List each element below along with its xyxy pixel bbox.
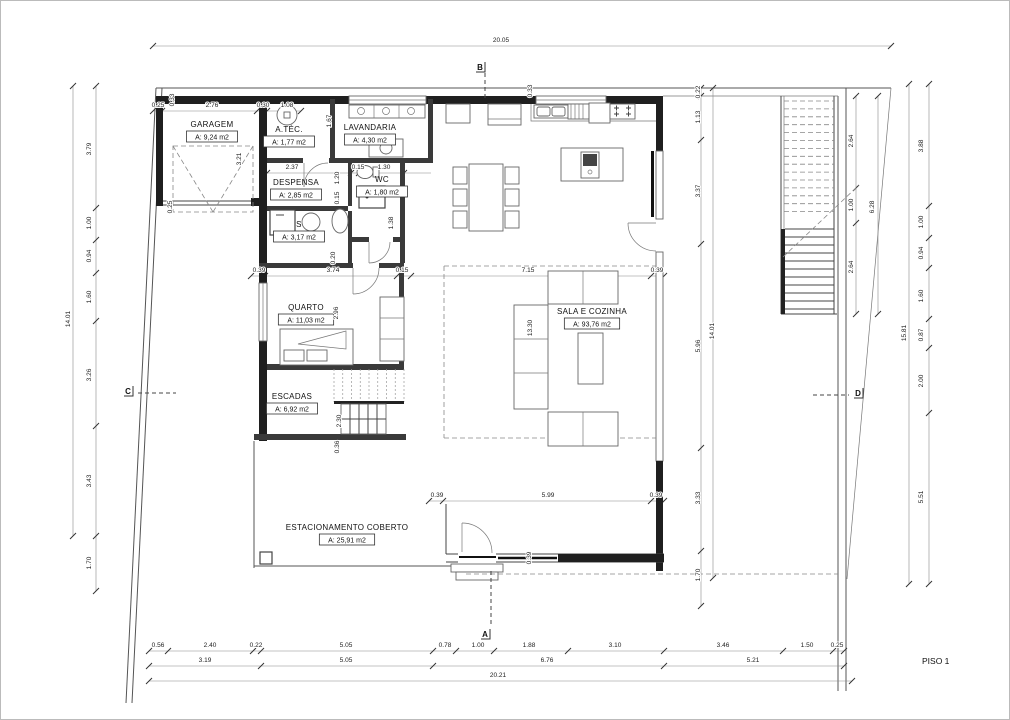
door-sala-side — [628, 223, 656, 251]
dimension-label: 1.38 — [388, 216, 395, 229]
dimension-label: 0.22 — [250, 642, 263, 649]
laundry-appliances — [349, 105, 425, 118]
room-label-sala-e-cozinha: SALA E COZINHAA: 93,76 m2 — [557, 307, 627, 329]
room-label-estacionamento-coberto: ESTACIONAMENTO COBERTOA: 25,91 m2 — [286, 523, 408, 545]
dashed-ceiling-lines — [444, 266, 838, 574]
sofa-group — [514, 271, 618, 446]
dimension-label: 2.64 — [848, 260, 855, 273]
dimension-label: 5.51 — [918, 490, 925, 503]
dimension-label: 1.00 — [86, 216, 93, 229]
room-name-text: SALA E COZINHA — [557, 307, 627, 316]
dimension-label: 0.25 — [831, 642, 844, 649]
dimension-label: 0.15 — [334, 191, 341, 204]
dimension-label: 3.33 — [695, 491, 702, 504]
dimension-label: 1.70 — [86, 556, 93, 569]
chair — [505, 167, 519, 184]
garage-door — [163, 198, 259, 206]
room-labels: GARAGEMA: 9,24 m2A.TÉC.A: 1,77 m2LAVANDA… — [187, 120, 628, 545]
dimension-label: 1.30 — [378, 164, 391, 171]
stove — [610, 104, 635, 119]
room-area-text: A: 93,76 m2 — [573, 322, 611, 329]
dimension-label: 3.88 — [918, 139, 925, 152]
entry-step — [456, 572, 498, 580]
dimension-label: 3.10 — [609, 642, 622, 649]
chair — [453, 189, 467, 206]
dimension-label: 0.25 — [152, 102, 165, 109]
dimension-label: 20.21 — [490, 672, 507, 679]
dimension-label: 1.20 — [334, 171, 341, 184]
room-name-text: WC — [375, 175, 389, 184]
dimension-label: 1.60 — [918, 289, 925, 302]
dimension-label: 0.39 — [650, 492, 663, 499]
dimension-label: 2.64 — [848, 134, 855, 147]
room-area-text: A: 1,80 m2 — [365, 190, 399, 197]
dimension-label: 3.46 — [717, 642, 730, 649]
pillow — [307, 350, 327, 361]
pillow — [284, 350, 304, 361]
room-label-a-t-c-: A.TÉC.A: 1,77 m2 — [264, 125, 315, 147]
washbasin — [302, 213, 320, 231]
dining-set — [453, 164, 519, 231]
dimension-label: 2.37 — [286, 164, 299, 171]
dimension-label: 1.67 — [326, 114, 333, 127]
toilet — [332, 209, 348, 233]
room-area-text: A: 9,24 m2 — [195, 135, 229, 142]
room-name-text: LAVANDARIA — [344, 123, 397, 132]
room-area-text: A: 2,85 m2 — [279, 193, 313, 200]
dimension-label: 5.99 — [542, 492, 555, 499]
dimension-label: 1.60 — [86, 290, 93, 303]
dimension-label: 6.76 — [541, 657, 554, 664]
room-label-despensa: DESPENSAA: 2,85 m2 — [271, 178, 322, 200]
dimension-label: 0.15 — [396, 267, 409, 274]
dimension-label: 0.87 — [918, 328, 925, 341]
dimension-label: 15.81 — [901, 324, 908, 341]
room-area-text: A: 25,91 m2 — [328, 538, 366, 545]
dimension-label: 14.01 — [65, 310, 72, 327]
dimension-label: 0.56 — [152, 642, 165, 649]
dimension-label: 1.00 — [472, 642, 485, 649]
coffee-table — [578, 333, 603, 384]
section-marker-letter: B — [477, 63, 483, 72]
room-name-text: DESPENSA — [273, 178, 319, 187]
dimension-label: 0.15 — [352, 164, 365, 171]
dimension-label: 5.21 — [747, 657, 760, 664]
dimension-label: 1.08 — [281, 102, 294, 109]
dimension-label: 5.96 — [695, 339, 702, 352]
glazed-window — [651, 151, 654, 217]
plan-title: PISO 1 — [922, 656, 950, 666]
dimension-label: 0.25 — [167, 200, 174, 213]
dimension-label: 0.20 — [330, 251, 337, 264]
cabinet — [446, 104, 470, 123]
chair — [453, 167, 467, 184]
dimension-label: 0.33 — [169, 93, 176, 106]
chair — [505, 189, 519, 206]
room-label-garagem: GARAGEMA: 9,24 m2 — [187, 120, 238, 142]
room-area-text: A: 1,77 m2 — [272, 140, 306, 147]
room-name-text: QUARTO — [288, 303, 324, 312]
room-area-text: A: 4,30 m2 — [353, 138, 387, 145]
dimension-label: 0.94 — [918, 246, 925, 259]
dimension-label: 0.36 — [334, 440, 341, 453]
dimension-label: 2.40 — [204, 642, 217, 649]
dimension-label: 3.19 — [199, 657, 212, 664]
dimension-label: 0.33 — [527, 84, 534, 97]
dimension-label: 0.39 — [253, 267, 266, 274]
dimension-label: 1.00 — [918, 215, 925, 228]
parking-post — [260, 552, 272, 564]
wardrobe — [380, 297, 404, 361]
section-marker-d: D — [854, 388, 863, 398]
dimension-label: 1.13 — [695, 110, 702, 123]
section-marker-b: B — [476, 62, 485, 72]
room-area-text: A: 3,17 m2 — [282, 235, 316, 242]
section-marker-c: C — [124, 386, 133, 396]
dimension-label: 5.05 — [340, 657, 353, 664]
dimension-label: 3.26 — [86, 368, 93, 381]
floor-plan-canvas: GARAGEMA: 9,24 m2A.TÉC.A: 1,77 m2LAVANDA… — [0, 0, 1010, 720]
room-label-lavandaria: LAVANDARIAA: 4,30 m2 — [344, 123, 397, 145]
dimension-label: 0.39 — [526, 551, 533, 564]
door-entry — [451, 523, 503, 580]
section-lines — [138, 73, 849, 625]
door-quarto — [353, 268, 379, 294]
dimension-label: 2.00 — [918, 374, 925, 387]
chair — [453, 211, 467, 228]
chair — [505, 211, 519, 228]
dimension-label: 3.43 — [86, 474, 93, 487]
room-name-text: ESTACIONAMENTO COBERTO — [286, 523, 408, 532]
dimension-label: 3.21 — [236, 152, 243, 165]
door-wc — [369, 242, 390, 263]
dining-table — [469, 164, 503, 231]
dimension-label: 3.79 — [86, 142, 93, 155]
room-name-text: S — [296, 220, 302, 229]
dimension-label: 0.39 — [431, 492, 444, 499]
stairs-interior — [334, 369, 404, 434]
cabinet — [488, 104, 521, 125]
dimension-label: 0.30 — [257, 102, 270, 109]
dimension-label: 6.28 — [869, 200, 876, 213]
island-cooktop — [583, 154, 597, 166]
room-label-quarto: QUARTOA: 11,03 m2 — [278, 303, 333, 325]
kitchen-cabinet — [589, 103, 610, 123]
floor-plan-drawing: GARAGEMA: 9,24 m2A.TÉC.A: 1,77 m2LAVANDA… — [1, 1, 1010, 720]
dimension-label: 20.05 — [493, 37, 510, 44]
dimension-label: 0.39 — [651, 267, 664, 274]
section-marker-letter: D — [855, 389, 861, 398]
dimension-label: 1.00 — [848, 198, 855, 211]
dimension-label: 3.37 — [695, 184, 702, 197]
room-name-text: ESCADAS — [272, 392, 312, 401]
dimension-label: 0.94 — [86, 249, 93, 262]
dimension-label: 2.30 — [336, 414, 343, 427]
room-area-text: A: 11,03 m2 — [287, 318, 324, 325]
dimension-label: 14.01 — [709, 322, 716, 339]
dimension-label: 2.96 — [333, 306, 340, 319]
room-area-text: A: 6,92 m2 — [275, 407, 309, 414]
dimension-label: 0.22 — [695, 85, 702, 98]
dimension-label: 5.05 — [340, 642, 353, 649]
dimension-label: 1.70 — [695, 568, 702, 581]
section-marker-letter: A — [482, 630, 488, 639]
dimension-label: 7.15 — [522, 267, 535, 274]
dimension-label: 1.88 — [523, 642, 536, 649]
dimension-label: 0.78 — [439, 642, 452, 649]
entry-step — [451, 564, 503, 572]
dimension-label: 3.74 — [327, 267, 340, 274]
section-marker-a: A — [481, 629, 490, 639]
room-name-text: A.TÉC. — [275, 125, 303, 134]
room-label-escadas: ESCADASA: 6,92 m2 — [267, 392, 318, 414]
dimension-label: 2.76 — [206, 102, 219, 109]
section-marker-letter: C — [125, 387, 131, 396]
dimension-label: 1.50 — [801, 642, 814, 649]
dimension-label: 13.30 — [527, 319, 534, 336]
room-name-text: GARAGEM — [191, 120, 234, 129]
